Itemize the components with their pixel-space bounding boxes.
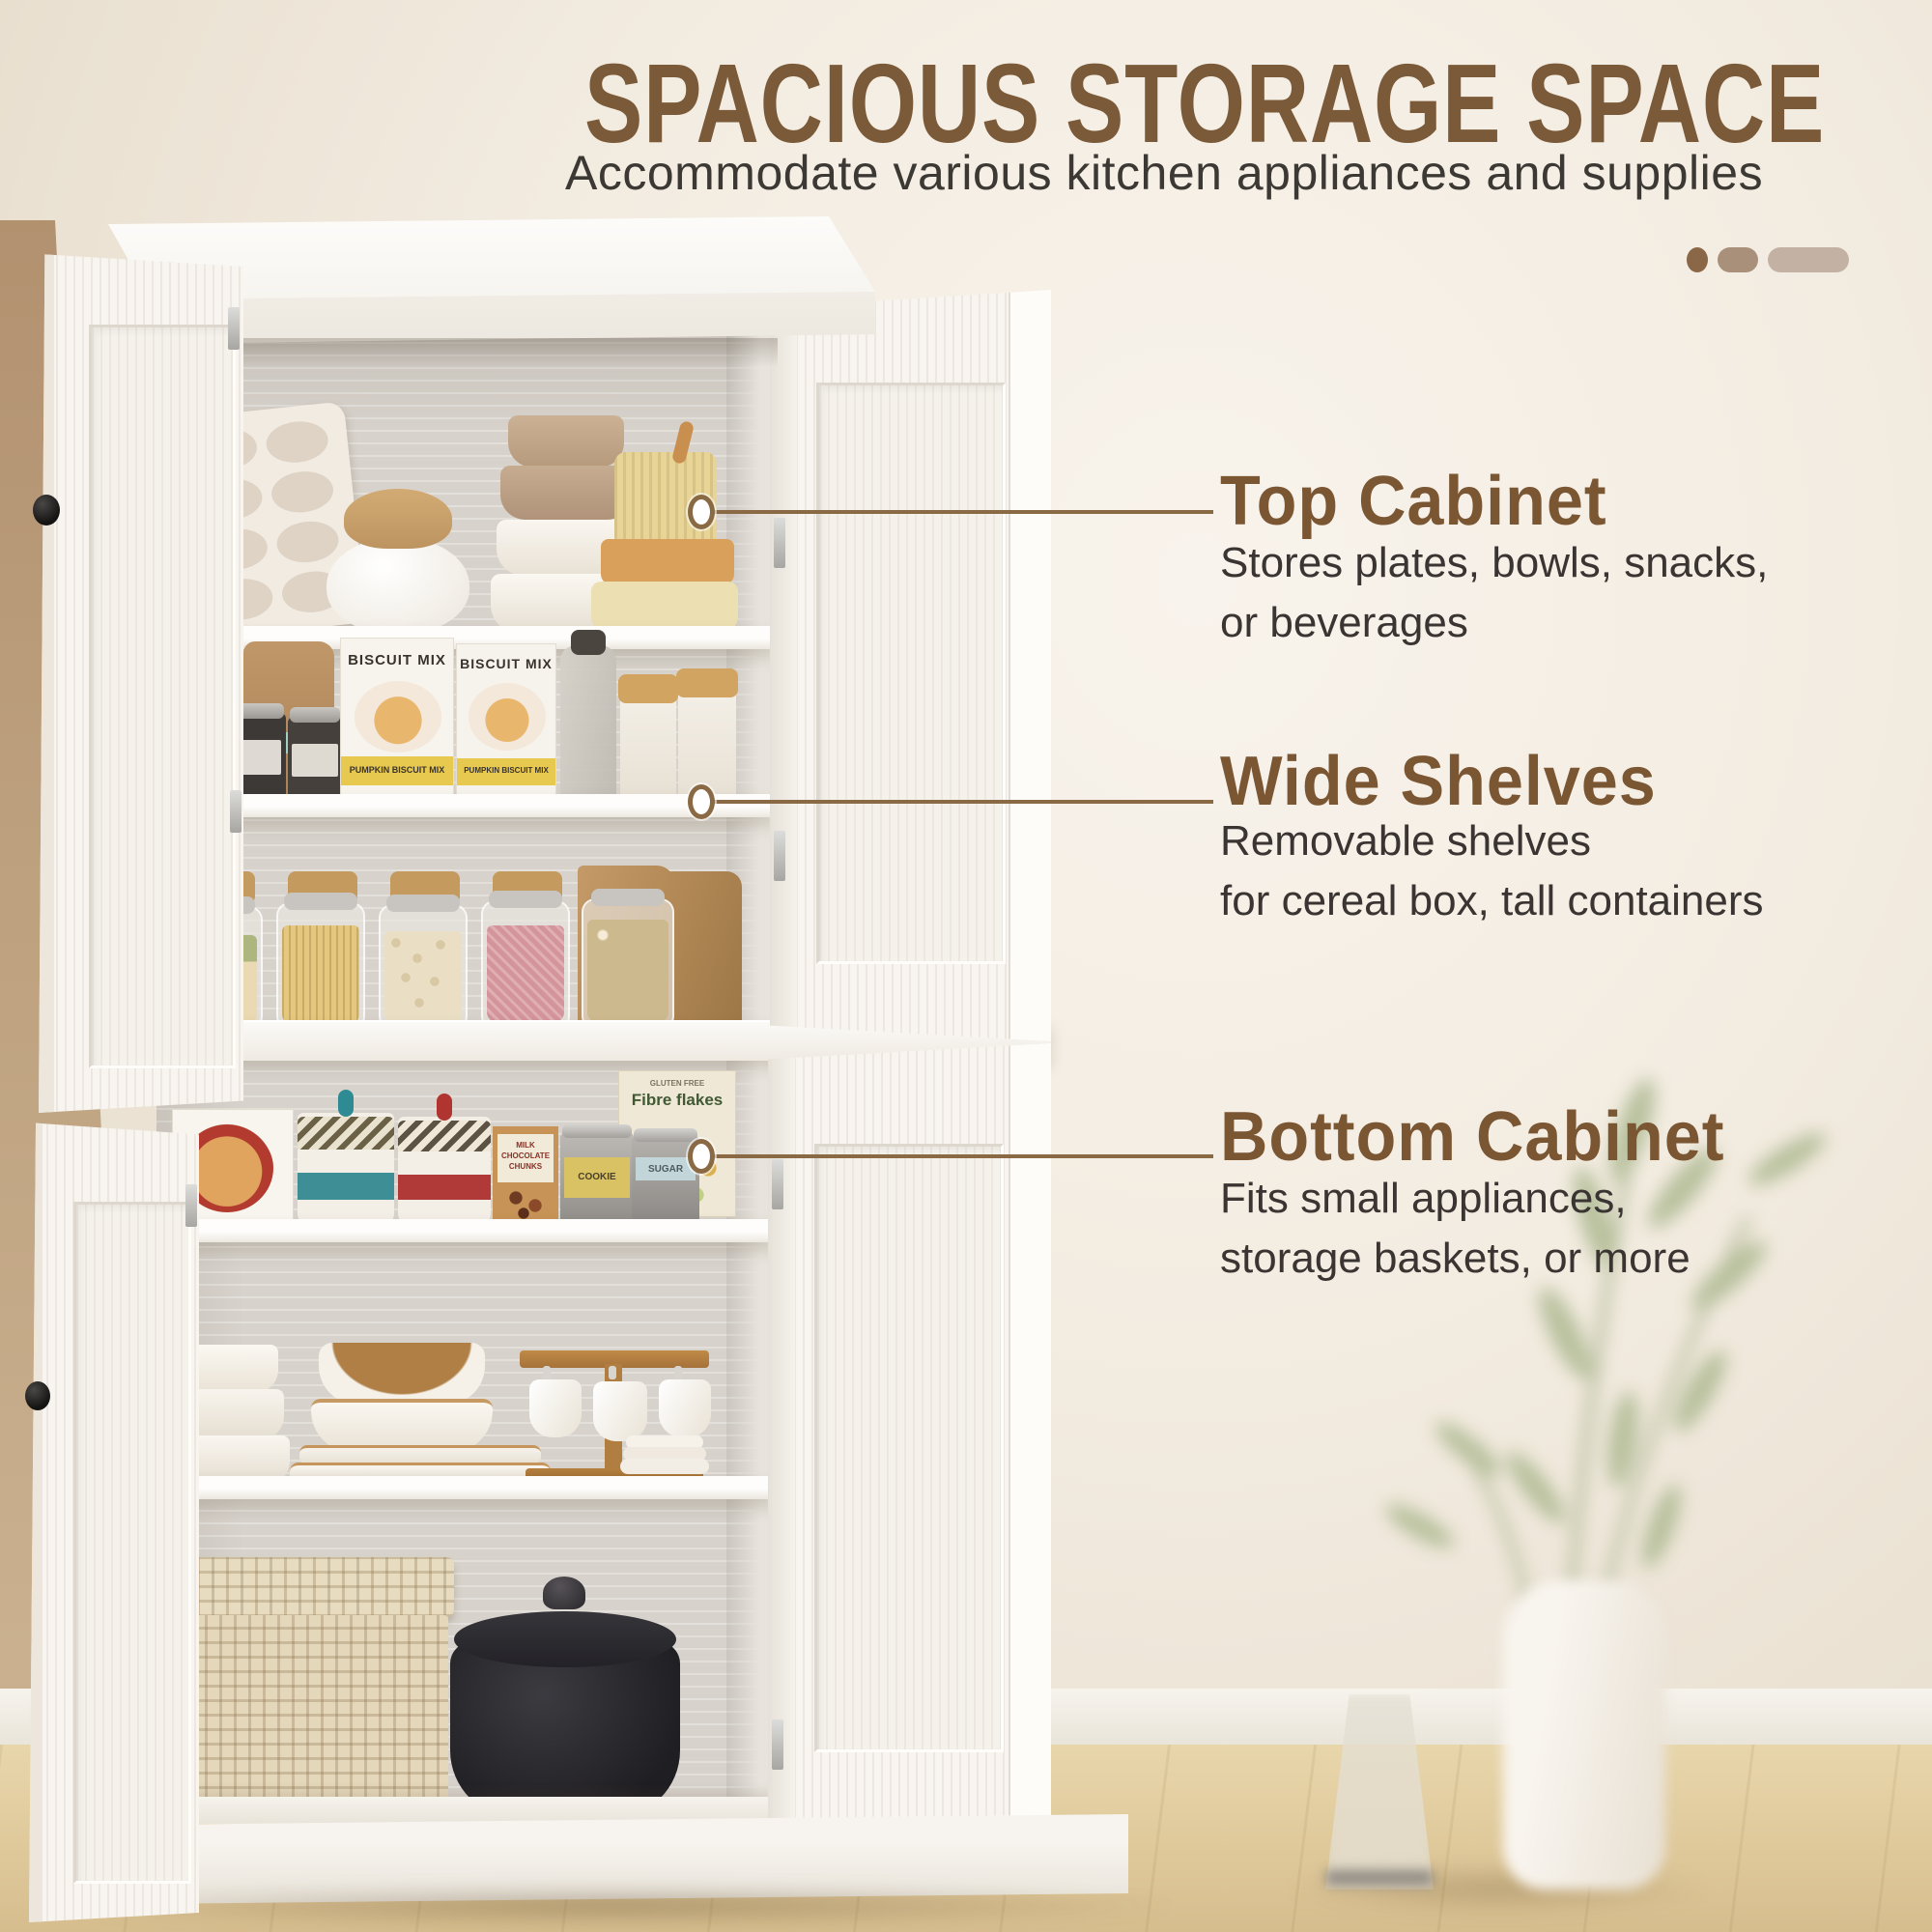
- fibre-flakes-tag: GLUTEN FREE: [619, 1079, 735, 1088]
- biscuit-box-title: BISCUIT MIX: [341, 652, 453, 668]
- callout-heading-top-cabinet: Top Cabinet: [1220, 462, 1607, 541]
- hinge: [230, 790, 241, 833]
- dutch-oven-lid: [454, 1611, 676, 1667]
- top-left-door[interactable]: [39, 249, 243, 1113]
- biscuit-band-text: PUMPKIN BISCUIT MIX: [341, 765, 453, 775]
- door-knob[interactable]: [25, 1381, 50, 1410]
- cookie-tin-label: COOKIE: [564, 1157, 630, 1198]
- chocolate-box: MILK CHOCOLATE CHUNKS: [493, 1126, 558, 1227]
- bottom-left-door[interactable]: [29, 1117, 199, 1922]
- crown-shadow: [155, 338, 778, 367]
- tray-hole: [265, 418, 330, 465]
- shelf-2: [159, 794, 775, 817]
- canister-knob: [437, 1094, 452, 1121]
- door-knob[interactable]: [33, 495, 60, 526]
- callout-body-line: or beverages: [1220, 593, 1768, 653]
- canister-teal: [298, 1113, 394, 1227]
- callout-body-wide-shelves: Removable shelves for cereal box, tall c…: [1220, 811, 1764, 931]
- clip-jar-pink-pasta: [481, 900, 570, 1030]
- canister-band: [398, 1175, 491, 1200]
- cloth-lid: [344, 489, 452, 549]
- callout-dot-icon: [688, 495, 715, 529]
- callout-body-line: storage baskets, or more: [1220, 1229, 1690, 1289]
- clip-jar-shells: [582, 898, 674, 1030]
- spice-tin: [288, 717, 342, 800]
- biscuit-box-band: PUMPKIN BISCUIT MIX: [457, 758, 555, 785]
- callout-dot-icon: [688, 784, 715, 819]
- fibre-flakes-title: Fibre flakes: [619, 1091, 735, 1110]
- wood-lid-canister: [678, 670, 736, 800]
- jar-lid: [284, 893, 357, 910]
- door-edge-face: [1009, 290, 1053, 1041]
- pagination-dot-2[interactable]: [1718, 247, 1758, 272]
- hook: [674, 1366, 682, 1379]
- pagination-dot-3-active[interactable]: [1768, 247, 1849, 272]
- callout-dot-icon: [688, 1139, 715, 1174]
- callout-heading-bottom-cabinet: Bottom Cabinet: [1220, 1097, 1724, 1177]
- biscuit-box-band: PUMPKIN BISCUIT MIX: [341, 756, 453, 785]
- wood-interior-bowl: [319, 1343, 485, 1405]
- hook: [609, 1366, 616, 1379]
- biscuit-box-title: BISCUIT MIX: [457, 656, 555, 671]
- glass-bottle: [560, 645, 616, 800]
- shelf-5: [159, 1476, 775, 1499]
- canister-pattern: [398, 1121, 491, 1151]
- bottle-cap: [571, 630, 606, 655]
- callout-body-top-cabinet: Stores plates, bowls, snacks, or beverag…: [1220, 533, 1768, 653]
- callout-body-line: Fits small appliances,: [1220, 1169, 1690, 1229]
- clip-jar-macaroni: [379, 904, 468, 1030]
- saucer: [620, 1459, 709, 1474]
- tin-label: [292, 744, 338, 777]
- glass-vase-base: [1325, 1870, 1434, 1886]
- callout-body-line: Stores plates, bowls, snacks,: [1220, 533, 1768, 593]
- canister-pattern: [298, 1117, 394, 1150]
- hanging-mug: [529, 1379, 582, 1437]
- chocolate-label: MILK CHOCOLATE CHUNKS: [497, 1134, 554, 1182]
- chocolate-art: [502, 1186, 549, 1221]
- door-recessed-panel: [89, 325, 236, 1068]
- canister-lid: [618, 674, 678, 703]
- hinge: [185, 1184, 197, 1227]
- leader-line-wide-shelves: [713, 800, 1213, 804]
- white-vase: [1503, 1580, 1665, 1889]
- biscuit-mix-box: BISCUIT MIX PUMPKIN BISCUIT MIX: [340, 638, 454, 798]
- clip-jar-spaghetti: [276, 902, 365, 1030]
- hinge: [772, 1719, 783, 1770]
- hook: [543, 1366, 551, 1379]
- cabinet-floor-shadow: [39, 1884, 1188, 1928]
- callout-body-line: for cereal box, tall containers: [1220, 871, 1764, 931]
- door-edge-face: [1009, 1043, 1053, 1837]
- callout-heading-wide-shelves: Wide Shelves: [1220, 742, 1657, 821]
- jar-lid: [591, 889, 665, 906]
- door-recessed-panel: [816, 383, 1006, 964]
- woven-storage-box-lid-texture: [168, 1557, 454, 1617]
- tray-hole: [270, 469, 335, 515]
- bowl: [500, 466, 632, 520]
- hinge: [774, 518, 785, 568]
- canister-lid: [676, 668, 738, 697]
- jar-lid: [386, 895, 460, 912]
- cookie-tin-text: COOKIE: [564, 1172, 630, 1182]
- biscuit-band-text: PUMPKIN BISCUIT MIX: [457, 766, 555, 775]
- canister-knob: [338, 1090, 354, 1117]
- cookie-tin: COOKIE: [560, 1132, 634, 1227]
- leader-line-top-cabinet: [713, 510, 1213, 514]
- jar-contents: [487, 925, 564, 1022]
- dutch-oven: [450, 1642, 680, 1818]
- orange-bowl: [601, 539, 734, 585]
- callout-body-bottom-cabinet: Fits small appliances, storage baskets, …: [1220, 1169, 1690, 1289]
- jar-contents: [282, 925, 359, 1024]
- pagination-dot-1[interactable]: [1687, 247, 1708, 272]
- biscuit-photo: [469, 683, 546, 751]
- cloth-lid-jar: [327, 537, 469, 634]
- jar-contents: [384, 931, 462, 1024]
- tin-lid: [634, 1128, 697, 1142]
- hinge: [228, 307, 240, 350]
- page-subtitle: Accommodate various kitchen appliances a…: [565, 145, 1763, 201]
- bottom-right-door[interactable]: [768, 1043, 1051, 1837]
- hinge: [774, 831, 785, 881]
- product-infographic: BISCUIT MIX PUMPKIN BISCUIT MIX BISCUIT …: [0, 0, 1932, 1932]
- shelf-4: [159, 1219, 775, 1242]
- door-recessed-panel: [73, 1202, 191, 1884]
- hanging-mug: [659, 1379, 711, 1437]
- door-hinge-band: [770, 290, 797, 1041]
- door-recessed-panel: [814, 1144, 1004, 1752]
- wood-lid-canister: [620, 676, 676, 800]
- jar-contents: [587, 920, 668, 1022]
- plate: [299, 1445, 541, 1464]
- hinge: [772, 1159, 783, 1209]
- chocolate-label-text: MILK CHOCOLATE CHUNKS: [497, 1140, 554, 1172]
- top-right-door[interactable]: [770, 290, 1051, 1041]
- tin-lid: [290, 707, 340, 723]
- tray-hole: [274, 519, 340, 565]
- sugar-tin-label: SUGAR: [636, 1157, 696, 1180]
- jar-lid: [489, 891, 562, 908]
- canister-band: [298, 1173, 394, 1200]
- biscuit-photo: [355, 681, 441, 753]
- tin-lid: [562, 1124, 632, 1138]
- sugar-tin-text: SUGAR: [636, 1164, 696, 1175]
- callout-body-line: Removable shelves: [1220, 811, 1764, 871]
- leader-line-bottom-cabinet: [713, 1154, 1213, 1158]
- bowl: [508, 415, 624, 468]
- hanging-mug: [593, 1381, 647, 1441]
- biscuit-mix-box: BISCUIT MIX PUMPKIN BISCUIT MIX: [456, 643, 556, 798]
- dutch-oven-knob: [543, 1577, 585, 1609]
- woven-storage-box-texture: [176, 1615, 448, 1818]
- canister-red: [398, 1117, 491, 1227]
